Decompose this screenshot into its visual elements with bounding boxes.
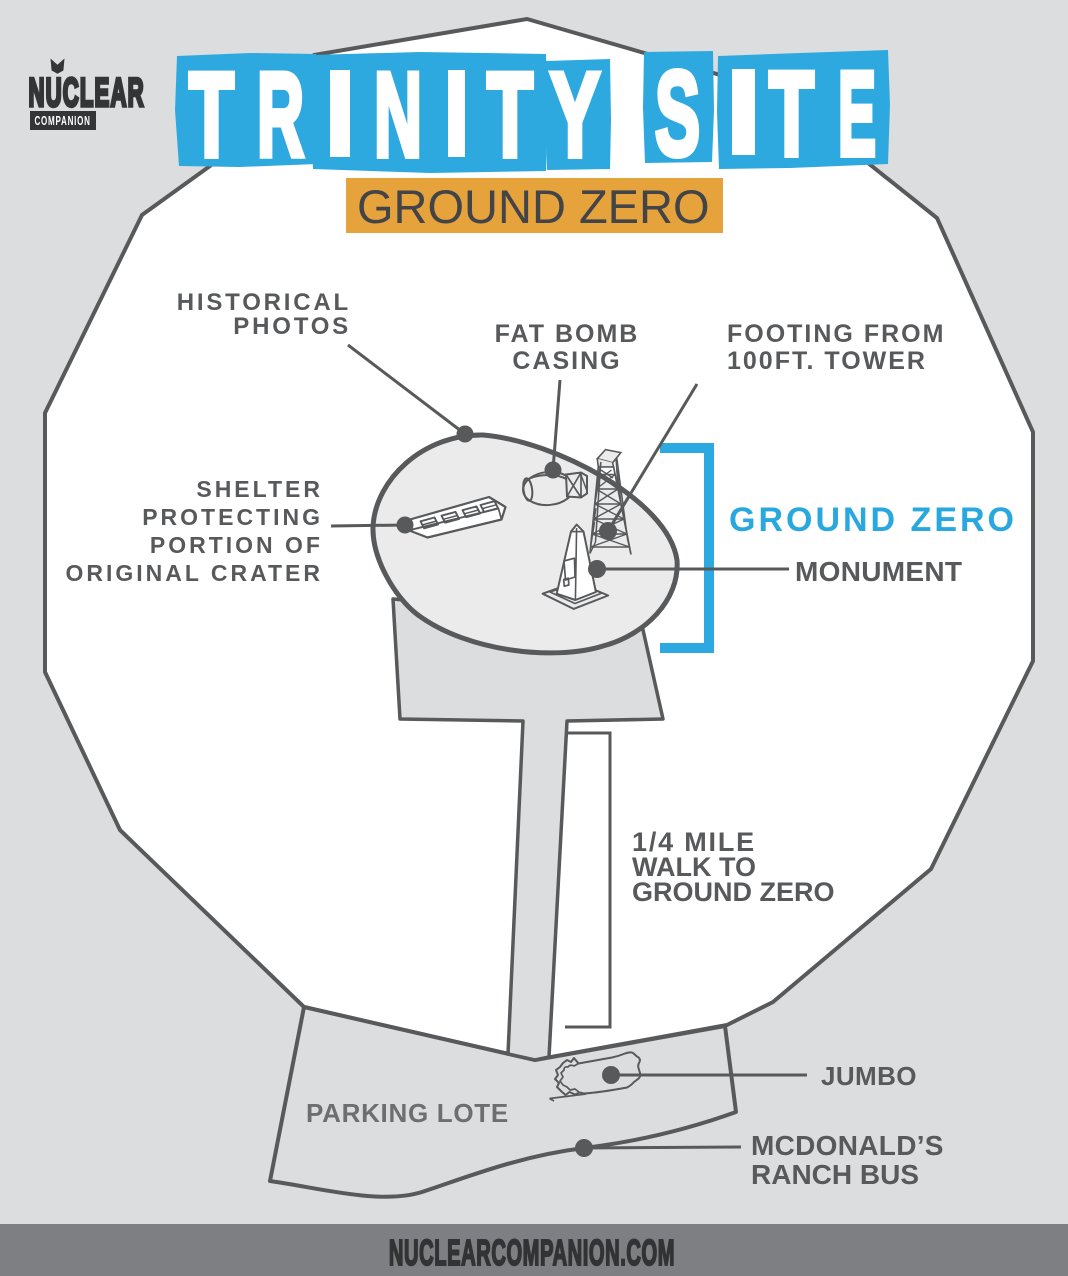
svg-text:T: T [189,49,234,183]
svg-text:PORTION OF: PORTION OF [150,532,323,558]
svg-text:E: E [838,46,876,180]
svg-text:GROUND ZERO: GROUND ZERO [632,877,835,907]
svg-text:RANCH BUS: RANCH BUS [751,1159,919,1190]
svg-text:PARKING LOTE: PARKING LOTE [306,1098,509,1128]
svg-text:R: R [257,49,304,182]
svg-text:Y: Y [550,48,600,182]
svg-text:GROUND ZERO: GROUND ZERO [357,180,710,233]
svg-text:MONUMENT: MONUMENT [795,556,962,587]
svg-text:MCDONALD’S: MCDONALD’S [751,1130,944,1161]
svg-text:GROUND ZERO: GROUND ZERO [729,501,1017,539]
svg-text:SHELTER: SHELTER [196,476,323,502]
svg-text:FOOTING FROM: FOOTING FROM [727,320,945,348]
svg-text:N: N [374,47,422,182]
svg-text:100FT. TOWER: 100FT. TOWER [727,347,927,375]
svg-text:COMPANION: COMPANION [35,114,91,128]
svg-text:HISTORICAL: HISTORICAL [177,289,351,316]
svg-text:S: S [655,47,700,181]
svg-text:FAT BOMB: FAT BOMB [495,320,640,348]
svg-text:T: T [769,48,814,182]
svg-text:T: T [487,48,533,182]
svg-text:CASING: CASING [512,347,621,375]
svg-text:ORIGINAL CRATER: ORIGINAL CRATER [65,560,323,586]
svg-text:PROTECTING: PROTECTING [142,504,323,530]
svg-text:NUCLEARCOMPANION.COM: NUCLEARCOMPANION.COM [389,1234,675,1273]
svg-text:NUCLEAR: NUCLEAR [29,70,145,115]
svg-text:JUMBO: JUMBO [821,1061,917,1091]
svg-text:PHOTOS: PHOTOS [233,313,351,340]
